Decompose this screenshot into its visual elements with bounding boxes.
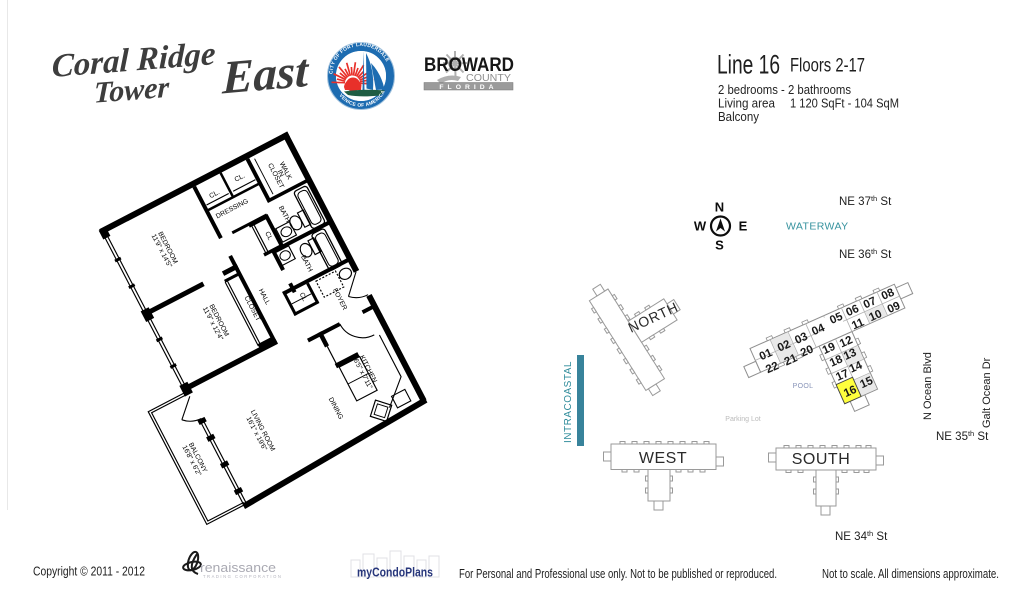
svg-text:N: N [715, 200, 724, 215]
svg-text:Living area: Living area [718, 97, 775, 111]
svg-text:NE 36th St: NE 36th St [839, 247, 892, 261]
svg-text:WATERWAY: WATERWAY [786, 221, 849, 233]
svg-text:Line 16: Line 16 [717, 50, 780, 80]
svg-text:S: S [715, 238, 724, 253]
svg-text:COUNTY: COUNTY [466, 72, 511, 84]
svg-text:East: East [221, 45, 311, 105]
svg-text:Balcony: Balcony [718, 110, 760, 124]
svg-text:myCondoPlans: myCondoPlans [357, 566, 433, 580]
svg-text:N Ocean Blvd: N Ocean Blvd [922, 352, 934, 420]
svg-text:NE 34th St: NE 34th St [835, 529, 888, 543]
svg-text:Tower: Tower [93, 70, 170, 110]
svg-text:WEST: WEST [639, 450, 687, 467]
svg-text:Galt Ocean Dr: Galt Ocean Dr [981, 357, 993, 428]
svg-text:For Personal and Professional: For Personal and Professional use only. … [459, 566, 777, 581]
svg-text:SOUTH: SOUTH [792, 451, 851, 468]
svg-text:renaissance: renaissance [200, 560, 276, 575]
svg-text:E: E [739, 219, 748, 234]
svg-text:INTRACOASTAL: INTRACOASTAL [563, 361, 574, 443]
svg-text:Parking Lot: Parking Lot [725, 416, 760, 423]
svg-text:NE 37th St: NE 37th St [839, 194, 892, 208]
svg-text:NE 35th St: NE 35th St [936, 429, 989, 443]
svg-text:Floors 2-17: Floors 2-17 [790, 55, 865, 77]
svg-text:Copyright © 2011 - 2012: Copyright © 2011 - 2012 [33, 565, 145, 579]
svg-text:W: W [694, 219, 707, 234]
svg-text:1 120 SqFt - 104 SqM: 1 120 SqFt - 104 SqM [790, 97, 899, 111]
svg-text:FLORIDA: FLORIDA [439, 84, 497, 91]
svg-text:TRADING CORPORATION: TRADING CORPORATION [203, 574, 282, 579]
svg-text:Not to scale. All dimensions: Not to scale. All dimensions approximate… [822, 566, 999, 581]
svg-text:POOL: POOL [793, 383, 814, 390]
svg-text:2 bedrooms - 2 bathrooms: 2 bedrooms - 2 bathrooms [718, 83, 851, 97]
